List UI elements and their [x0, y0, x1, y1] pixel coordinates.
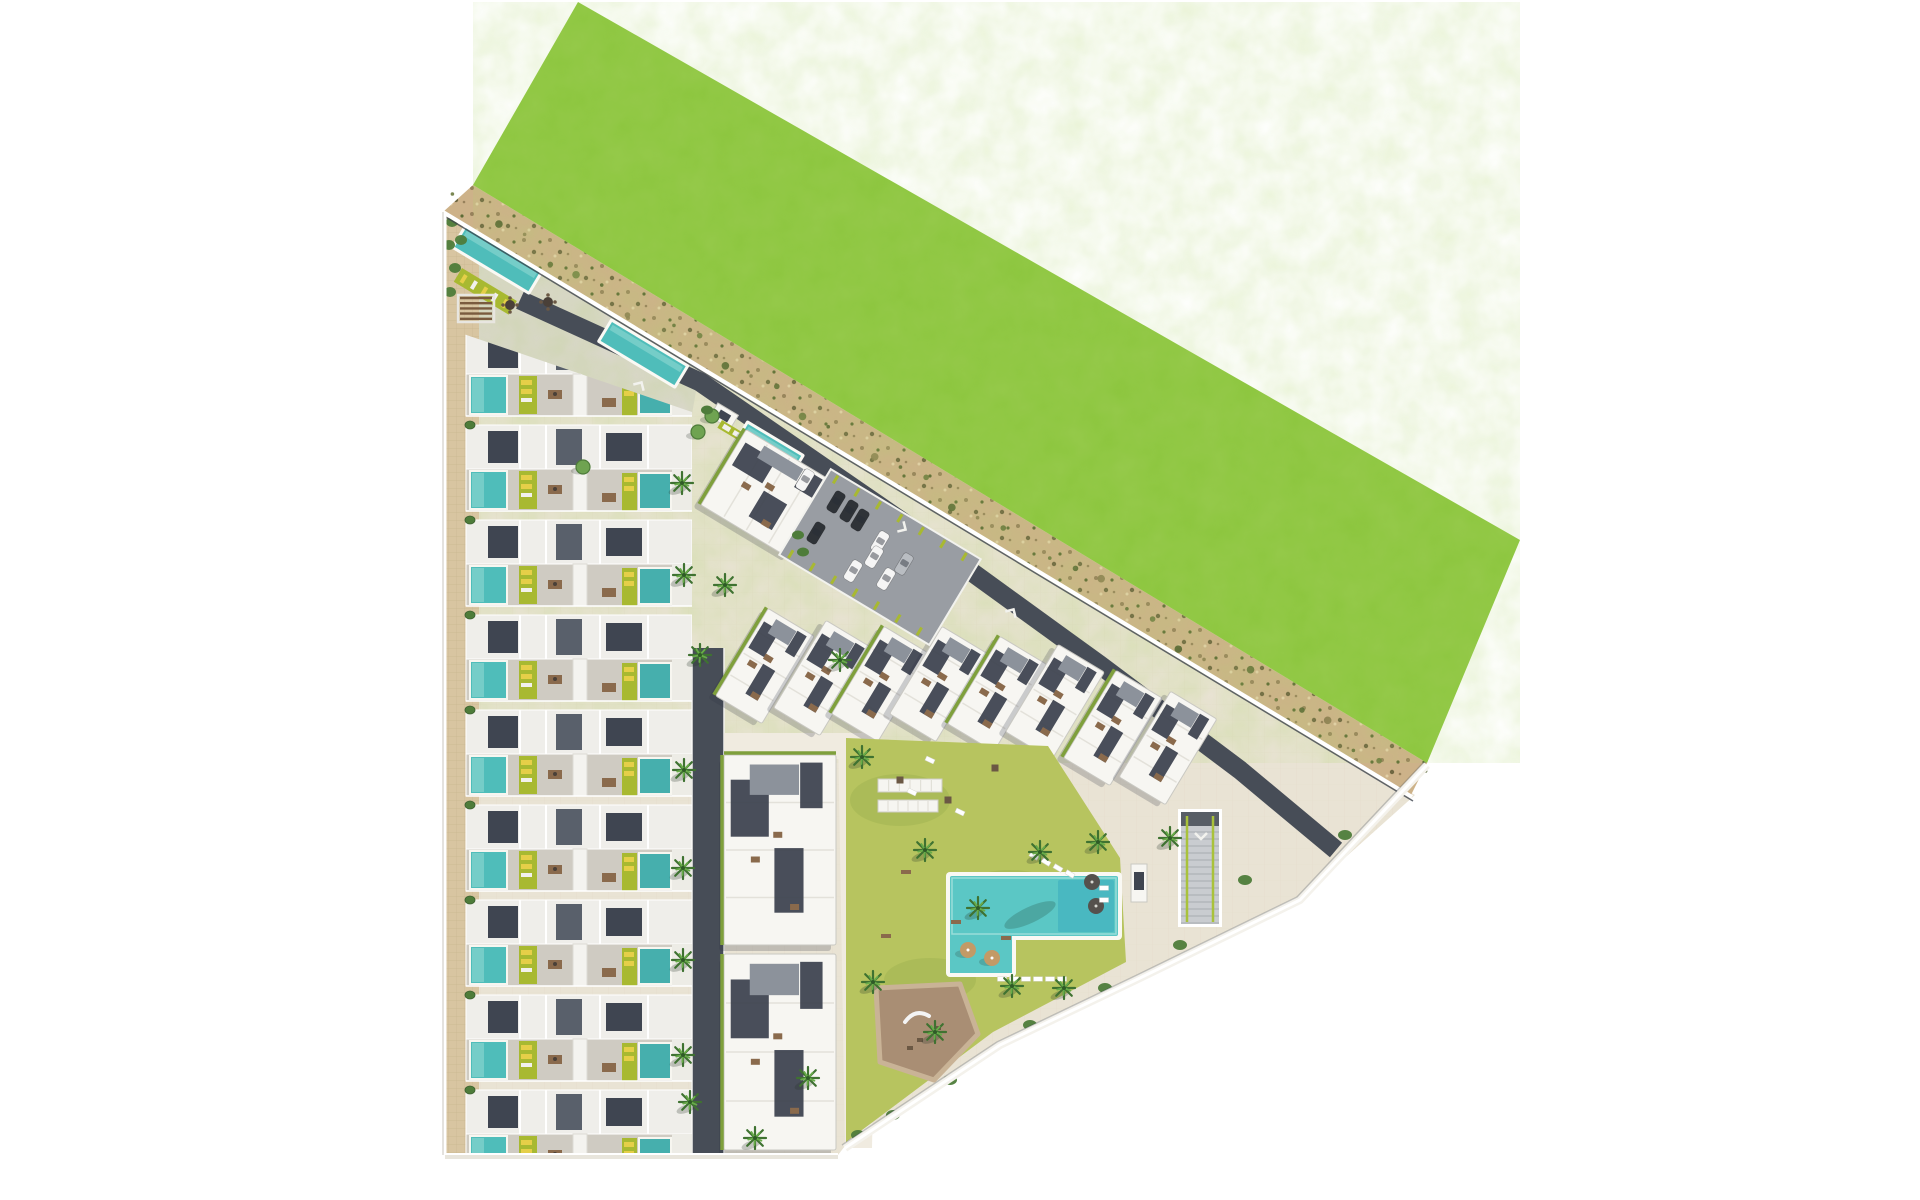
townhouse-row: [466, 900, 692, 986]
bush: [797, 548, 809, 557]
townhouse-block: [466, 330, 692, 1176]
pergola: [458, 295, 494, 322]
private-pool: [639, 568, 671, 604]
apartment-block: [719, 954, 836, 1156]
townhouse-row: [466, 615, 692, 701]
cabana: [945, 797, 952, 804]
rooftop-furniture: [751, 1059, 760, 1065]
private-pool: [639, 758, 671, 794]
rooftop-furniture: [773, 1033, 782, 1039]
private-pool: [639, 473, 671, 509]
private-pool: [639, 1043, 671, 1079]
sun-lounger: [1100, 898, 1109, 903]
garden-pergola: [878, 800, 938, 812]
sun-lounger: [1034, 977, 1043, 982]
bush: [1338, 830, 1352, 840]
bush: [1238, 875, 1252, 885]
private-pool: [639, 948, 671, 984]
tree: [691, 425, 705, 439]
bush: [792, 531, 804, 540]
sun-lounger: [1100, 886, 1109, 891]
masterplan-aerial-rendering: Aerial top-down 3D masterplan rendering …: [0, 0, 1920, 1200]
townhouse-row: [466, 805, 692, 891]
townhouse-row: [466, 995, 692, 1081]
townhouse-row: [466, 1090, 692, 1176]
townhouse-row: [466, 710, 692, 796]
cabana: [992, 765, 999, 772]
tree: [576, 460, 590, 474]
sun-lounger: [1058, 977, 1067, 982]
sun-lounger: [1046, 977, 1055, 982]
rooftop-furniture: [773, 832, 782, 838]
cabana: [897, 777, 904, 784]
townhouse-row: [466, 520, 692, 606]
garage-ramp: [1178, 809, 1222, 927]
apartment-block: [719, 753, 836, 951]
bush: [701, 406, 713, 415]
bush: [1173, 940, 1187, 950]
bench: [901, 870, 911, 874]
rooftop-furniture: [790, 904, 799, 910]
site-plan-canvas: [0, 0, 1920, 1200]
rooftop-furniture: [790, 1108, 799, 1114]
sun-lounger: [1022, 977, 1031, 982]
bench: [881, 934, 891, 938]
bench: [951, 920, 961, 924]
private-pool: [639, 663, 671, 699]
private-pool: [639, 853, 671, 889]
pool-pavilion: [1131, 864, 1147, 902]
rooftop-furniture: [751, 857, 760, 863]
bench: [1001, 936, 1011, 940]
